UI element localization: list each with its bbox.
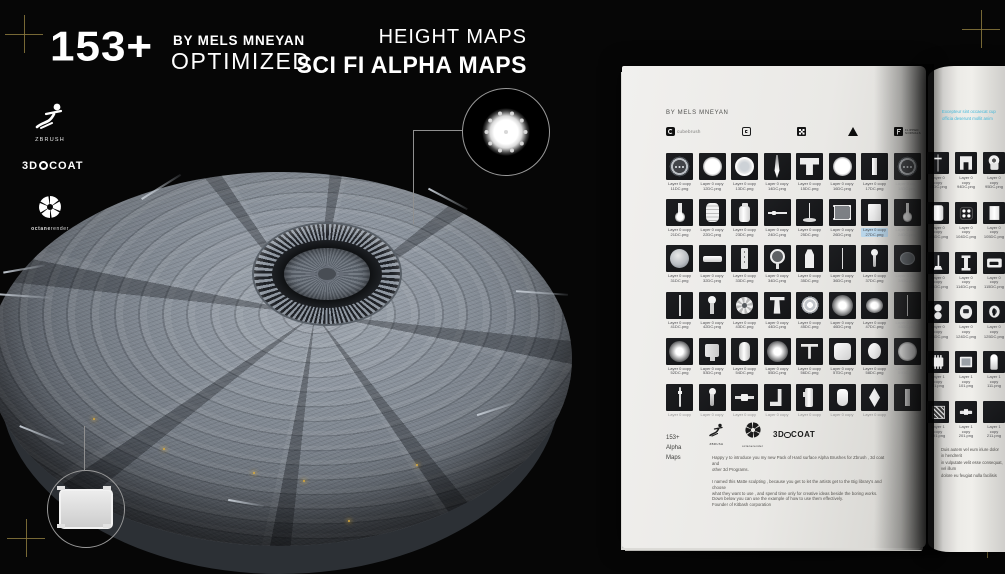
hatch-panel-alpha — [59, 489, 113, 529]
3dcoat-mini-logo: 3DCOAT — [773, 430, 815, 439]
alpha-cell: Layer 0 copy52DC.png — [666, 338, 693, 376]
alpha-filename: Layer 0 copy114DC.png — [955, 276, 977, 290]
alpha-thumbnail — [699, 384, 726, 411]
alpha-cell: Layer 0 copy58DC.png — [861, 338, 888, 376]
alpha-cell: Layer 0 copy93DC.png — [927, 152, 949, 190]
alpha-shape — [796, 292, 823, 319]
alpha-label-file: 191.png — [927, 434, 949, 439]
alpha-thumbnail — [731, 199, 758, 226]
alpha-label-top: Layer 0 copy — [796, 413, 823, 417]
height-maps-subtitle: HEIGHT MAPS — [297, 26, 527, 49]
alpha-thumbnail — [666, 384, 693, 411]
zbrush-mini-icon — [708, 423, 725, 437]
alpha-cell: Layer 0 copy124DC.png — [955, 301, 977, 339]
alpha-shape — [861, 153, 888, 180]
alpha-cell: Layer 0 copy43DC.png — [731, 292, 758, 330]
alpha-filename: Layer 0 copy46DC.png — [829, 321, 856, 330]
alpha-filename: Layer 0 copy41DC.png — [666, 321, 693, 330]
alpha-thumbnail — [955, 252, 977, 274]
store-gumroad — [742, 127, 753, 136]
footer-line: in vulputate velit esse consequat, vel i… — [941, 460, 1003, 473]
alpha-thumbnail — [861, 153, 888, 180]
page-count-alpha: Alpha — [666, 443, 681, 453]
callout-line — [413, 130, 463, 131]
store-label: FLIPPED NORMALS — [905, 129, 919, 135]
alpha-thumbnail — [927, 252, 949, 274]
alpha-shape — [861, 292, 888, 319]
alpha-filename: Layer 0 copy123DC.png — [927, 325, 949, 339]
artstation-icon — [848, 127, 858, 136]
alpha-filename: Layer 0 copy — [894, 413, 921, 417]
alpha-cell: Layer 0 copy103DC.png — [927, 202, 949, 240]
alpha-label-file: 58DC.png — [861, 371, 888, 376]
alpha-filename: Layer 1 copy91.png — [927, 375, 949, 389]
alpha-cell: Layer 0 copy114DC.png — [955, 252, 977, 290]
alpha-shape — [894, 384, 921, 411]
alpha-filename: Layer 0 copy115DC.png — [983, 276, 1005, 290]
alpha-label-file: 23DC.png — [731, 233, 758, 238]
alpha-cell: Layer 1 copy111.png — [983, 351, 1005, 389]
alpha-cell: Layer 0 copy24DC.png — [764, 199, 791, 237]
alpha-filename: Layer 0 copy23DC.png — [731, 228, 758, 237]
alpha-label-file: 21DC.png — [666, 233, 693, 238]
alpha-cell: Layer 0 copy28DC.png — [894, 199, 921, 237]
count-153: 153+ — [50, 23, 153, 71]
alpha-cell: Layer 0 copy55DC.png — [764, 338, 791, 376]
alpha-thumbnail — [894, 338, 921, 365]
store-logos-row: cubebrushFLIPPED NORMALS — [666, 127, 916, 141]
alpha-cell: Layer 0 copy44DC.png — [764, 292, 791, 330]
alpha-shape — [796, 245, 823, 272]
alpha-filename: Layer 0 copy93DC.png — [927, 176, 949, 190]
alpha-shape — [927, 152, 949, 174]
alpha-thumbnail — [955, 351, 977, 373]
alpha-shape — [861, 384, 888, 411]
alpha-filename: Layer 1 copy191.png — [927, 425, 949, 439]
zbrush-mini-logo: ZBRUSH — [708, 423, 725, 446]
alpha-filename: Layer 1 copy111.png — [983, 375, 1005, 389]
alpha-cell: Layer 0 copy — [894, 384, 921, 417]
alpha-filename: Layer 0 copy53DC.png — [699, 367, 726, 376]
alpha-cell: Layer 0 copy59DC.png — [894, 338, 921, 376]
alpha-filename: Layer 0 copy125DC.png — [983, 325, 1005, 339]
alpha-thumbnail — [829, 292, 856, 319]
alpha-filename: Layer 0 copy31DC.png — [666, 274, 693, 283]
alpha-cell: Layer 0 copy25DC.png — [796, 199, 823, 237]
3dcoat-post: COAT — [49, 160, 83, 172]
alpha-shape — [796, 384, 823, 411]
alpha-filename: Layer 0 copy54DC.png — [731, 367, 758, 376]
alpha-cell: Layer 0 copy14DC.png — [764, 153, 791, 191]
page-count-block: 153+ Alpha Maps — [666, 433, 681, 463]
alpha-shape — [894, 245, 921, 272]
3dcoat-gear-icon — [39, 161, 48, 170]
alpha-label-top: Layer 0 copy — [894, 413, 921, 417]
alpha-label-file: 37DC.png — [861, 279, 888, 284]
alpha-label-file: 11DC.png — [666, 187, 693, 192]
saucer-hub — [318, 268, 336, 280]
footer-line: Duis autem vel eum iriure dolor in hendr… — [941, 447, 1003, 460]
alpha-shape — [666, 338, 693, 365]
store-label: cubebrush — [677, 129, 701, 134]
alpha-cell: Layer 0 copy123DC.png — [927, 301, 949, 339]
alpha-cell: Layer 0 copy — [699, 384, 726, 417]
alpha-thumbnail — [955, 202, 977, 224]
alpha-thumbnail — [699, 292, 726, 319]
alpha-shape — [731, 292, 758, 319]
alpha-label-file: 15DC.png — [796, 187, 823, 192]
alpha-thumbnail — [894, 384, 921, 411]
hull-light — [303, 480, 305, 482]
alpha-label-file: 125DC.png — [983, 335, 1005, 340]
alpha-label-file: 94DC.png — [955, 185, 977, 190]
alpha-cell: Layer 0 copy48DC.png — [894, 292, 921, 330]
alpha-thumbnail — [927, 401, 949, 423]
alpha-filename: Layer 0 copy52DC.png — [666, 367, 693, 376]
alpha-shape — [796, 153, 823, 180]
alpha-cell: Layer 0 copy — [796, 384, 823, 417]
page-count: 153+ — [666, 433, 681, 443]
alpha-filename: Layer 0 copy — [731, 413, 758, 417]
alpha-filename: Layer 0 copy37DC.png — [861, 274, 888, 283]
alpha-label-file: 103DC.png — [927, 235, 949, 240]
alpha-filename: Layer 0 copy95DC.png — [983, 176, 1005, 190]
alpha-label-file: 43DC.png — [731, 325, 758, 330]
alpha-label-file: 41DC.png — [666, 325, 693, 330]
dotgrid-icon — [797, 127, 806, 136]
alpha-cell: Layer 0 copy11DC.png — [666, 153, 693, 191]
alpha-shape — [955, 351, 977, 373]
alpha-filename: Layer 0 copy59DC.png — [894, 367, 921, 376]
alpha-label-file: 18DC.png — [894, 187, 921, 192]
alpha-thumbnail — [983, 401, 1005, 423]
alpha-shape — [983, 252, 1005, 274]
alpha-shape — [731, 153, 758, 180]
alpha-cell: Layer 0 copy95DC.png — [983, 152, 1005, 190]
alpha-cell: Layer 0 copy12DC.png — [699, 153, 726, 191]
zbrush-icon — [33, 102, 67, 130]
paragraph-line: other 3d Programs. — [712, 467, 888, 473]
alpha-thumbnail — [699, 338, 726, 365]
alpha-cell: Layer 1 copy101.png — [955, 351, 977, 389]
alpha-thumbnail — [699, 153, 726, 180]
alpha-label-file: 12DC.png — [699, 187, 726, 192]
alpha-shape — [829, 292, 856, 319]
alpha-cell: Layer 0 copy — [764, 384, 791, 417]
alpha-shape — [894, 338, 921, 365]
alpha-label-top: Layer 0 copy — [861, 413, 888, 417]
alpha-filename: Layer 0 copy36DC.png — [829, 274, 856, 283]
alpha-cell: Layer 0 copy22DC.png — [699, 199, 726, 237]
alpha-filename: Layer 0 copy24DC.png — [764, 228, 791, 237]
alpha-shape — [983, 202, 1005, 224]
alpha-thumbnail — [731, 384, 758, 411]
alpha-shape — [829, 199, 856, 226]
alpha-thumbnail — [764, 199, 791, 226]
alpha-shape — [861, 199, 888, 226]
alpha-thumbnail — [894, 245, 921, 272]
alpha-cell: Layer 0 copy — [731, 384, 758, 417]
alpha-label-file: 16DC.png — [829, 187, 856, 192]
alpha-filename: Layer 0 copy21DC.png — [666, 228, 693, 237]
alpha-thumbnail — [731, 153, 758, 180]
alpha-filename: Layer 0 copy — [829, 413, 856, 417]
alpha-label-top: Layer 0 copy — [666, 413, 693, 417]
alpha-filename: Layer 0 copy — [764, 413, 791, 417]
alpha-label-file: 24DC.png — [764, 233, 791, 238]
alpha-thumbnail — [829, 245, 856, 272]
alpha-label-file: 201.png — [955, 434, 977, 439]
alpha-cell: Layer 0 copy56DC.png — [796, 338, 823, 376]
alpha-shape — [699, 153, 726, 180]
alpha-label-file: 93DC.png — [927, 185, 949, 190]
alpha-shape — [894, 292, 921, 319]
callout-line — [413, 131, 414, 224]
alpha-thumbnail — [983, 252, 1005, 274]
alpha-shape — [796, 338, 823, 365]
alpha-shape — [764, 384, 791, 411]
alpha-cell: Layer 0 copy38DC.png — [894, 245, 921, 283]
alpha-shape — [764, 199, 791, 226]
alpha-label-top: Layer 0 copy — [764, 413, 791, 417]
alpha-label-file: 33DC.png — [731, 279, 758, 284]
alpha-shape — [699, 199, 726, 226]
alpha-label-file: 31DC.png — [666, 279, 693, 284]
alpha-label-file: 25DC.png — [796, 233, 823, 238]
scifi-alpha-maps-title: SCI FI ALPHA MAPS — [297, 51, 527, 79]
alpha-shape — [983, 301, 1005, 323]
alpha-shape — [894, 153, 921, 180]
footer-line: dolore eu feugiat nulla facilisis — [941, 473, 1003, 479]
alpha-label-file: 59DC.png — [894, 371, 921, 376]
alpha-filename: Layer 0 copy14DC.png — [764, 182, 791, 191]
alpha-filename: Layer 0 copy58DC.png — [861, 367, 888, 376]
alpha-filename: Layer 0 copy105DC.png — [983, 226, 1005, 240]
alpha-cell: Layer 0 copy94DC.png — [955, 152, 977, 190]
alpha-cell: Layer 0 copy47DC.png — [861, 292, 888, 330]
alpha-label-file: 105DC.png — [983, 235, 1005, 240]
alpha-cell: Layer 0 copy18DC.png — [894, 153, 921, 191]
alpha-grid-left: Layer 0 copy11DC.pngLayer 0 copy12DC.png… — [666, 153, 921, 417]
flippednormals-icon — [894, 127, 903, 136]
alpha-shape — [861, 245, 888, 272]
intro-line: Excepteur sint occaecat cup — [942, 109, 1004, 116]
alpha-label-file: 28DC.png — [894, 233, 921, 238]
alpha-filename: Layer 0 copy25DC.png — [796, 228, 823, 237]
alpha-filename: Layer 0 copy43DC.png — [731, 321, 758, 330]
alpha-label-file: 101.png — [955, 384, 977, 389]
store-flippednormals: FLIPPED NORMALS — [894, 127, 919, 136]
alpha-label-file: 35DC.png — [796, 279, 823, 284]
alpha-filename: Layer 0 copy32DC.png — [699, 274, 726, 283]
alpha-thumbnail — [894, 199, 921, 226]
alpha-thumbnail — [796, 338, 823, 365]
alpha-label-file: 22DC.png — [699, 233, 726, 238]
alpha-label-file: 14DC.png — [764, 187, 791, 192]
hull-light — [348, 520, 350, 522]
zbrush-logo: ZBRUSH — [30, 102, 70, 143]
zbrush-label: ZBRUSH — [30, 137, 70, 143]
alpha-label-file: 114DC.png — [955, 285, 977, 290]
alpha-thumbnail — [894, 292, 921, 319]
alpha-thumbnail — [829, 153, 856, 180]
alpha-cell: Layer 1 copy201.png — [955, 401, 977, 439]
alpha-thumbnail — [983, 202, 1005, 224]
3dcoat-pre: 3D — [22, 160, 38, 172]
alpha-shape — [829, 384, 856, 411]
right-page-intro-text: Excepteur sint occaecat cupofficia deser… — [942, 109, 1004, 122]
alpha-filename: Layer 0 copy13DC.png — [731, 182, 758, 191]
alpha-filename: Layer 0 copy17DC.png — [861, 182, 888, 191]
alpha-thumbnail — [927, 351, 949, 373]
alpha-shape — [955, 401, 977, 423]
alpha-cell: Layer 0 copy31DC.png — [666, 245, 693, 283]
alpha-thumbnail — [983, 351, 1005, 373]
alpha-filename: Layer 0 copy — [666, 413, 693, 417]
alpha-label-file: 113DC.png — [927, 285, 949, 290]
alpha-cell: Layer 0 copy115DC.png — [983, 252, 1005, 290]
alpha-filename: Layer 0 copy33DC.png — [731, 274, 758, 283]
store-artstation — [848, 127, 860, 136]
alpha-shape — [731, 338, 758, 365]
alpha-thumbnail — [983, 301, 1005, 323]
octane-mini-label: octanerender — [742, 444, 763, 448]
alpha-shape — [666, 384, 693, 411]
alpha-cell: Layer 0 copy23DC.png — [731, 199, 758, 237]
alpha-thumbnail — [764, 153, 791, 180]
alpha-thumbnail — [861, 199, 888, 226]
alpha-thumbnail — [927, 152, 949, 174]
promo-poster: { "header": { "count": "153+", "byline":… — [0, 0, 1005, 566]
alpha-cell: Layer 0 copy26DC.png — [829, 199, 856, 237]
alpha-label-file: 34DC.png — [764, 279, 791, 284]
alpha-label-file: 38DC.png — [894, 279, 921, 284]
alpha-cell: Layer 0 copy33DC.png — [731, 245, 758, 283]
alpha-label-file: 36DC.png — [829, 279, 856, 284]
alpha-label-file: 42DC.png — [699, 325, 726, 330]
alpha-cell: Layer 0 copy35DC.png — [796, 245, 823, 283]
alpha-filename: Layer 0 copy — [796, 413, 823, 417]
gumroad-icon — [742, 127, 751, 136]
alpha-filename: Layer 0 copy103DC.png — [927, 226, 949, 240]
alpha-label-file: 17DC.png — [861, 187, 888, 192]
alpha-shape — [955, 152, 977, 174]
alpha-cell: Layer 0 copy46DC.png — [829, 292, 856, 330]
alpha-label-top: Layer 0 copy — [731, 413, 758, 417]
alpha-shape — [699, 384, 726, 411]
alpha-thumbnail — [861, 292, 888, 319]
alpha-cell: Layer 0 copy36DC.png — [829, 245, 856, 283]
alpha-label-file: 27DC.png — [861, 233, 888, 238]
alpha-filename: Layer 0 copy48DC.png — [894, 321, 921, 330]
alpha-grid-right: Layer 0 copy93DC.pngLayer 0 copy94DC.png… — [927, 152, 1005, 439]
alpha-thumbnail — [796, 153, 823, 180]
page-byline: BY MELS MNEYAN — [666, 110, 729, 116]
title-block: HEIGHT MAPS SCI FI ALPHA MAPS — [297, 26, 527, 78]
alpha-thumbnail — [764, 384, 791, 411]
alpha-label-file: 95DC.png — [983, 185, 1005, 190]
alpha-shape — [796, 199, 823, 226]
alpha-shape — [666, 153, 693, 180]
alpha-shape — [927, 401, 949, 423]
bolt-dots — [504, 130, 508, 134]
alpha-thumbnail — [983, 152, 1005, 174]
hull-light — [253, 472, 255, 474]
alpha-label-file: 44DC.png — [764, 325, 791, 330]
alpha-cell: Layer 1 copy91.png — [927, 351, 949, 389]
alpha-label-file: 111.png — [983, 384, 1005, 389]
alpha-shape — [861, 338, 888, 365]
3dcoat-logo: 3DCOAT — [22, 160, 83, 172]
alpha-thumbnail — [796, 292, 823, 319]
alpha-label-file: 45DC.png — [796, 325, 823, 330]
alpha-shape — [983, 401, 1005, 423]
paragraph-line: Happy y to introduce you my new Pack of … — [712, 455, 888, 467]
alpha-thumbnail — [955, 152, 977, 174]
alpha-label-file: 55DC.png — [764, 371, 791, 376]
octane-mini-icon — [744, 421, 762, 439]
alpha-cell: Layer 0 copy57DC.png — [829, 338, 856, 376]
alpha-thumbnail — [666, 338, 693, 365]
alpha-shape — [731, 384, 758, 411]
alpha-label-top: Layer 0 copy — [829, 413, 856, 417]
alpha-filename: Layer 0 copy16DC.png — [829, 182, 856, 191]
right-page-footer-text: Duis autem vel eum iriure dolor in hendr… — [941, 447, 1003, 479]
alpha-shape — [927, 202, 949, 224]
store-cubebrush: cubebrush — [666, 127, 701, 136]
alpha-thumbnail — [955, 301, 977, 323]
alpha-cell: Layer 0 copy125DC.png — [983, 301, 1005, 339]
alpha-filename: Layer 0 copy34DC.png — [764, 274, 791, 283]
alpha-filename: Layer 0 copy22DC.png — [699, 228, 726, 237]
alpha-cell: Layer 0 copy113DC.png — [927, 252, 949, 290]
alpha-shape — [927, 252, 949, 274]
alpha-filename: Layer 0 copy57DC.png — [829, 367, 856, 376]
alpha-filename: Layer 0 copy38DC.png — [894, 274, 921, 283]
alpha-filename: Layer 0 copy18DC.png — [894, 182, 921, 191]
paragraph: I named this Matte sculpting , because y… — [712, 479, 888, 509]
alpha-filename: Layer 0 copy56DC.png — [796, 367, 823, 376]
alpha-cell: Layer 0 copy21DC.png — [666, 199, 693, 237]
alpha-thumbnail — [699, 199, 726, 226]
alpha-thumbnail — [764, 338, 791, 365]
alpha-shape — [666, 199, 693, 226]
alpha-thumbnail — [829, 338, 856, 365]
alpha-filename: Layer 1 copy201.png — [955, 425, 977, 439]
alpha-filename: Layer 1 copy101.png — [955, 375, 977, 389]
alpha-thumbnail — [927, 202, 949, 224]
page-count-maps: Maps — [666, 453, 681, 463]
alpha-cell: Layer 0 copy54DC.png — [731, 338, 758, 376]
alpha-shape — [699, 292, 726, 319]
alpha-label-file: 52DC.png — [666, 371, 693, 376]
alpha-thumbnail — [861, 245, 888, 272]
alpha-thumbnail — [861, 338, 888, 365]
alpha-cell: Layer 0 copy — [829, 384, 856, 417]
alpha-thumbnail — [894, 153, 921, 180]
alpha-filename: Layer 0 copy55DC.png — [764, 367, 791, 376]
intro-line: officia deserunt mollit anim — [942, 116, 1004, 123]
alpha-shape — [666, 292, 693, 319]
alpha-cell: Layer 0 copy13DC.png — [731, 153, 758, 191]
optimized-label: OPTIMIZED — [171, 48, 311, 75]
alpha-label-file: 124DC.png — [955, 335, 977, 340]
alpha-label-file: 57DC.png — [829, 371, 856, 376]
alpha-cell: Layer 0 copy104DC.png — [955, 202, 977, 240]
alpha-shape — [927, 301, 949, 323]
alpha-thumbnail — [796, 245, 823, 272]
cubebrush-icon — [666, 127, 675, 136]
